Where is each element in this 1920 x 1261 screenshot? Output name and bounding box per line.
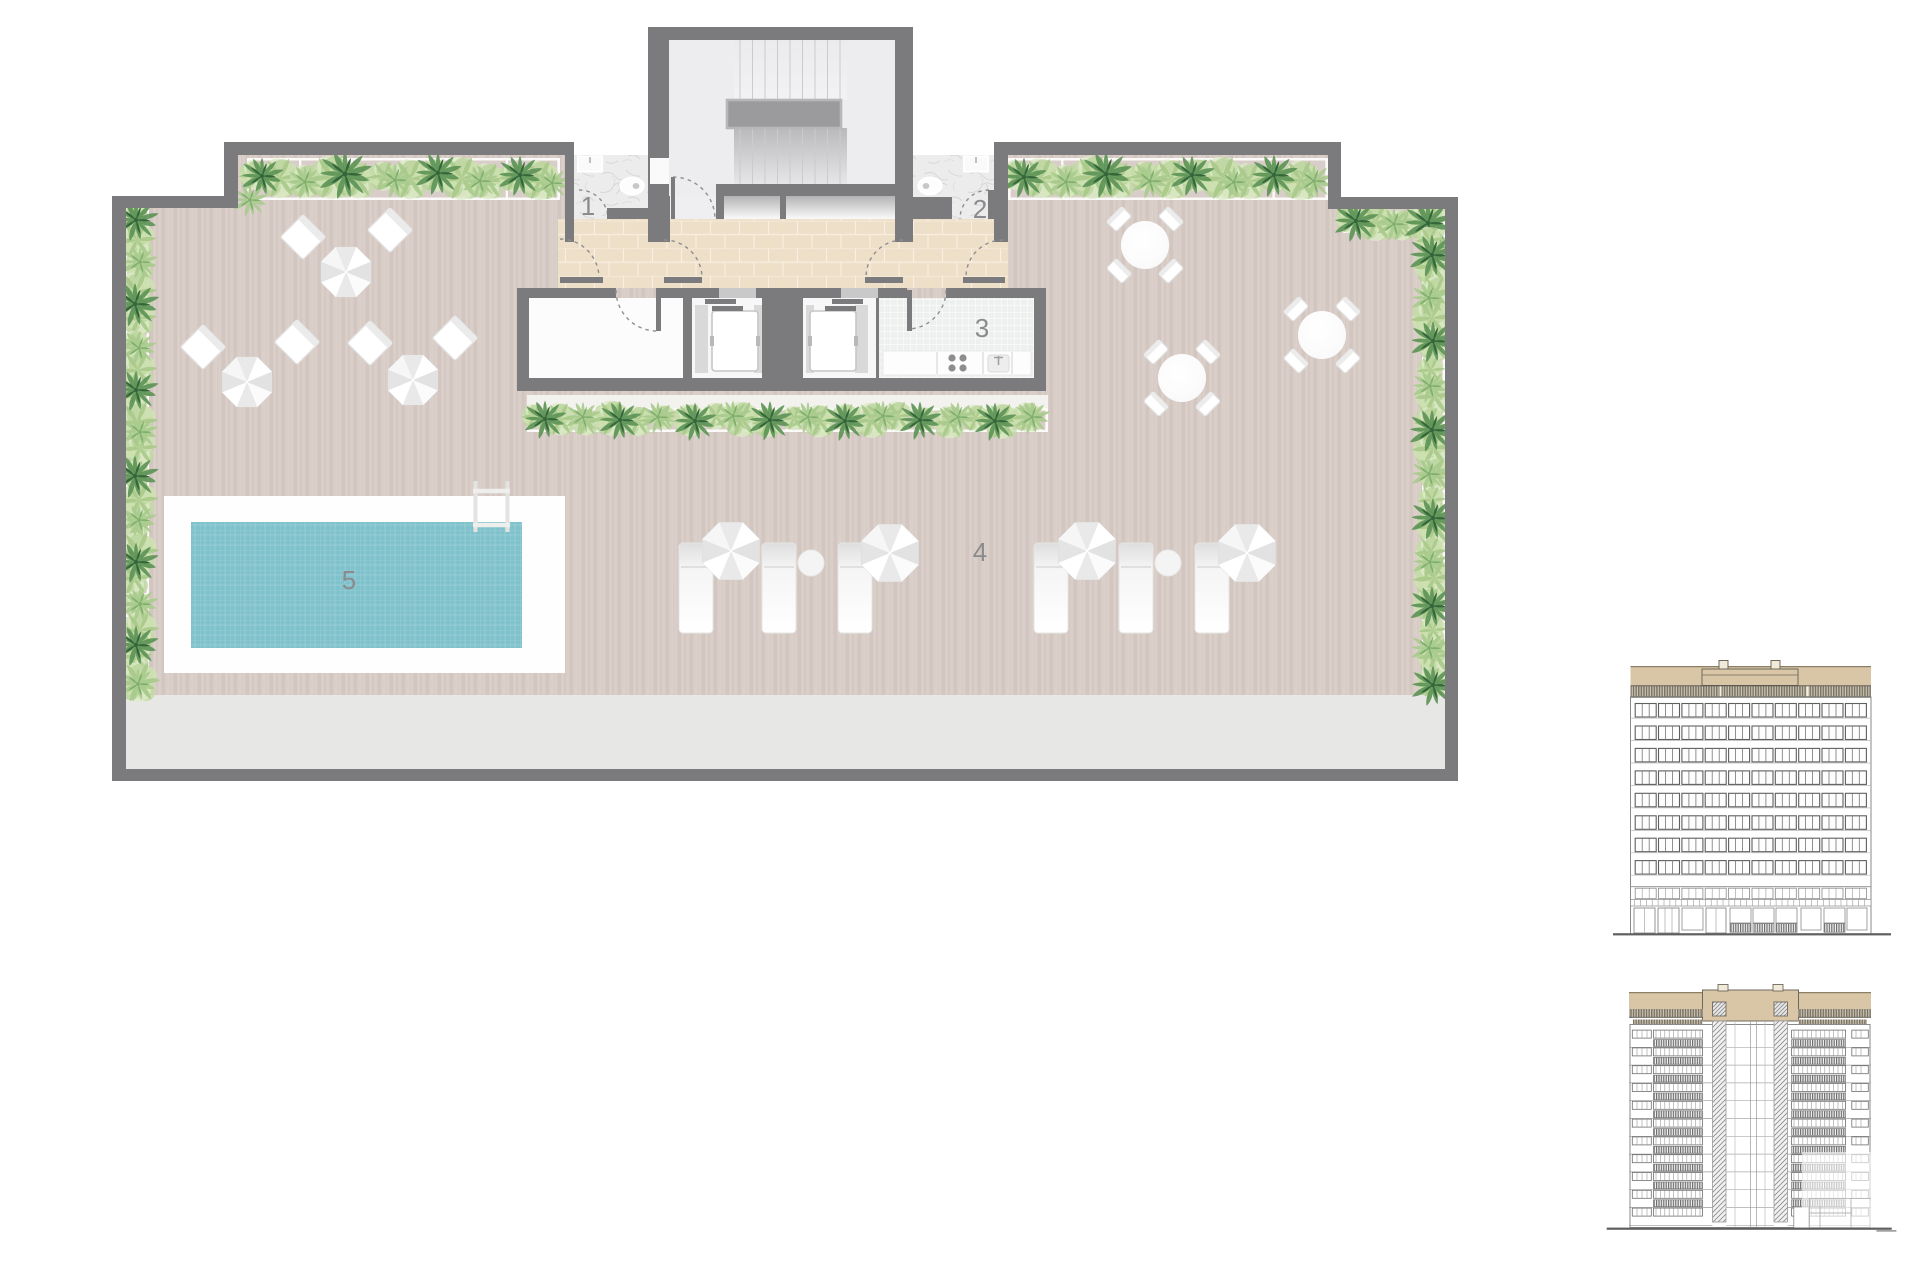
svg-text:5: 5 xyxy=(342,565,356,595)
svg-text:2: 2 xyxy=(973,194,987,224)
svg-text:4: 4 xyxy=(973,537,987,567)
svg-text:1: 1 xyxy=(581,191,595,221)
svg-text:3: 3 xyxy=(975,313,989,343)
